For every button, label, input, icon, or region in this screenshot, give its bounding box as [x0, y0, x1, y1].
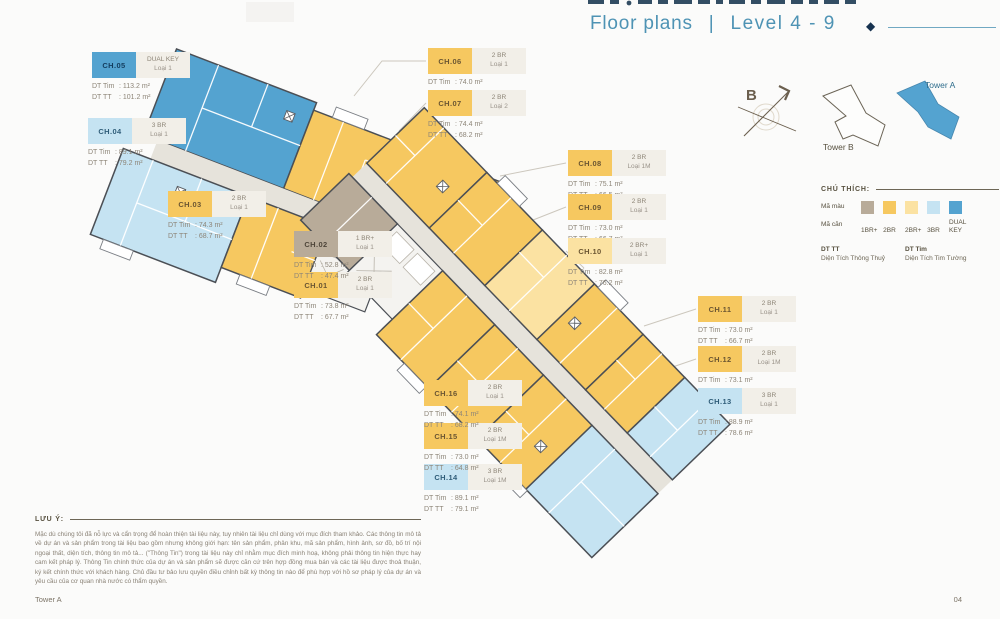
unit-metrics: DT Tim: 89.1 m²DT TT: 79.1 m²	[424, 494, 522, 515]
disclaimer-text: Mặc dù chúng tôi đã nỗ lực và cẩn trọng …	[35, 530, 421, 587]
legend-code: 2BR+	[905, 227, 918, 235]
legend-color-row-label: Mã màu	[821, 201, 861, 210]
unit-chip: CH.162 BRLoại 1	[424, 380, 522, 406]
unit-callout-ch05: CH.05DUAL KEYLoại 1DT Tim: 113.2 m²DT TT…	[92, 52, 190, 103]
legend-swatches	[861, 201, 971, 216]
legend-dt-tt-desc: Diện Tích Thông Thuỷ	[821, 255, 885, 262]
unit-metrics: DT Tim: 113.2 m²DT TT: 101.2 m²	[92, 82, 190, 103]
unit-metrics: DT Tim: 82.8 m²DT TT: 76.2 m²	[568, 268, 666, 289]
unit-type: 2 BRLoại 1	[212, 191, 266, 217]
unit-metrics: DT Tim: 88.9 m²DT TT: 78.6 m²	[698, 418, 796, 439]
legend-rule	[876, 189, 999, 190]
unit-chip: CH.032 BRLoại 1	[168, 191, 266, 217]
unit-type: 3 BRLoại 1	[742, 388, 796, 414]
page-number: 04	[954, 595, 962, 604]
unit-chip: CH.102 BR+Loại 1	[568, 238, 666, 264]
unit-id: CH.16	[424, 380, 468, 406]
legend-swatch-2br-	[905, 201, 918, 214]
unit-callout-ch03: CH.032 BRLoại 1DT Tim: 74.3 m²DT TT: 68.…	[168, 191, 266, 242]
unit-id: CH.08	[568, 150, 612, 176]
unit-callout-ch07: CH.072 BRLoại 2DT Tim: 74.4 m²DT TT: 68.…	[428, 90, 526, 141]
unit-metrics: DT Tim: 74.3 m²DT TT: 68.7 m²	[168, 221, 266, 242]
unit-chip: CH.082 BRLoại 1M	[568, 150, 666, 176]
unit-metrics: DT Tim: 74.1 m²DT TT: 68.2 m²	[424, 410, 522, 431]
unit-type: 2 BRLoại 1	[468, 380, 522, 406]
unit-type: 2 BRLoại 1	[742, 296, 796, 322]
unit-type: DUAL KEYLoại 1	[136, 52, 190, 78]
unit-chip: CH.043 BRLoại 1	[88, 118, 186, 144]
footer-tower-name: Tower A	[35, 595, 62, 604]
legend-code-row-label: Mã căn	[821, 219, 861, 228]
legend-swatch-dual-key	[949, 201, 962, 214]
unit-metrics: DT Tim: 73.0 m²DT TT: 64.8 m²	[424, 453, 522, 474]
unit-chip: CH.072 BRLoại 2	[428, 90, 526, 116]
unit-chip: CH.092 BRLoại 1	[568, 194, 666, 220]
legend: CHÚ THÍCH: Mã màu Mã căn 1BR+2BR2BR+3BRD…	[821, 186, 999, 264]
unit-callout-ch11: CH.112 BRLoại 1DT Tim: 73.0 m²DT TT: 66.…	[698, 296, 796, 347]
unit-id: CH.02	[294, 231, 338, 257]
unit-metrics: DT Tim: 73.8 m²DT TT: 67.7 m²	[294, 302, 392, 323]
unit-type: 2 BRLoại 1M	[742, 346, 796, 372]
unit-id: CH.10	[568, 238, 612, 264]
unit-metrics: DT Tim: 52.8 m²DT TT: 47.4 m²	[294, 261, 392, 282]
unit-callout-ch02: CH.021 BR+Loại 1DT Tim: 52.8 m²DT TT: 47…	[294, 231, 392, 282]
unit-id: CH.04	[88, 118, 132, 144]
unit-chip: CH.122 BRLoại 1M	[698, 346, 796, 372]
unit-id: CH.13	[698, 388, 742, 414]
legend-code: 3BR	[927, 227, 940, 235]
unit-chip: CH.133 BRLoại 1	[698, 388, 796, 414]
unit-id: CH.12	[698, 346, 742, 372]
unit-callout-ch13: CH.133 BRLoại 1DT Tim: 88.9 m²DT TT: 78.…	[698, 388, 796, 439]
legend-code: 2BR	[883, 227, 896, 235]
unit-metrics: DT Tim: 89.1 m²DT TT: 79.2 m²	[88, 148, 186, 169]
legend-dt-tim-desc: Diện Tích Tim Tường	[905, 255, 966, 262]
legend-dt-tim-label: DT Tim	[905, 245, 989, 255]
unit-id: CH.05	[92, 52, 136, 78]
unit-type: 2 BRLoại 1M	[612, 150, 666, 176]
unit-callout-ch04: CH.043 BRLoại 1DT Tim: 89.1 m²DT TT: 79.…	[88, 118, 186, 169]
unit-chip: CH.021 BR+Loại 1	[294, 231, 392, 257]
unit-id: CH.07	[428, 90, 472, 116]
unit-type: 1 BR+Loại 1	[338, 231, 392, 257]
legend-swatch-1br-	[861, 201, 874, 214]
unit-callout-ch10: CH.102 BR+Loại 1DT Tim: 82.8 m²DT TT: 76…	[568, 238, 666, 289]
unit-callout-ch16: CH.162 BRLoại 1DT Tim: 74.1 m²DT TT: 68.…	[424, 380, 522, 431]
legend-code: 1BR+	[861, 227, 874, 235]
unit-metrics: DT Tim: 74.4 m²DT TT: 68.2 m²	[428, 120, 526, 141]
brochure-page: B Tower A Tower B Floor plans | Level 4 …	[0, 0, 1000, 619]
legend-swatch-2br	[883, 201, 896, 214]
unit-chip: CH.112 BRLoại 1	[698, 296, 796, 322]
disclaimer-label: LƯU Ý:	[35, 516, 64, 523]
unit-id: CH.06	[428, 48, 472, 74]
legend-swatch-3br	[927, 201, 940, 214]
disclaimer: LƯU Ý: Mặc dù chúng tôi đã nỗ lực và cẩn…	[35, 516, 421, 587]
unit-id: CH.11	[698, 296, 742, 322]
unit-type: 2 BRLoại 2	[472, 90, 526, 116]
legend-codes: 1BR+2BR2BR+3BRDUAL KEY	[861, 219, 971, 235]
legend-dt-tim: DT Tim Diện Tích Tim Tường	[905, 245, 989, 265]
unit-type: 2 BRLoại 1	[612, 194, 666, 220]
unit-type: 2 BR+Loại 1	[612, 238, 666, 264]
unit-type: 3 BRLoại 1	[132, 118, 186, 144]
unit-id: CH.03	[168, 191, 212, 217]
unit-metrics: DT Tim: 73.0 m²DT TT: 66.7 m²	[698, 326, 796, 347]
legend-dt-tt-label: DT TT	[821, 245, 905, 255]
unit-chip: CH.05DUAL KEYLoại 1	[92, 52, 190, 78]
legend-code: DUAL KEY	[949, 219, 962, 235]
unit-type: 2 BRLoại 1	[472, 48, 526, 74]
unit-chip: CH.062 BRLoại 1	[428, 48, 526, 74]
disclaimer-rule	[70, 519, 421, 520]
legend-title: CHÚ THÍCH:	[821, 186, 870, 193]
legend-dt-tt: DT TT Diện Tích Thông Thuỷ	[821, 245, 905, 265]
unit-id: CH.09	[568, 194, 612, 220]
